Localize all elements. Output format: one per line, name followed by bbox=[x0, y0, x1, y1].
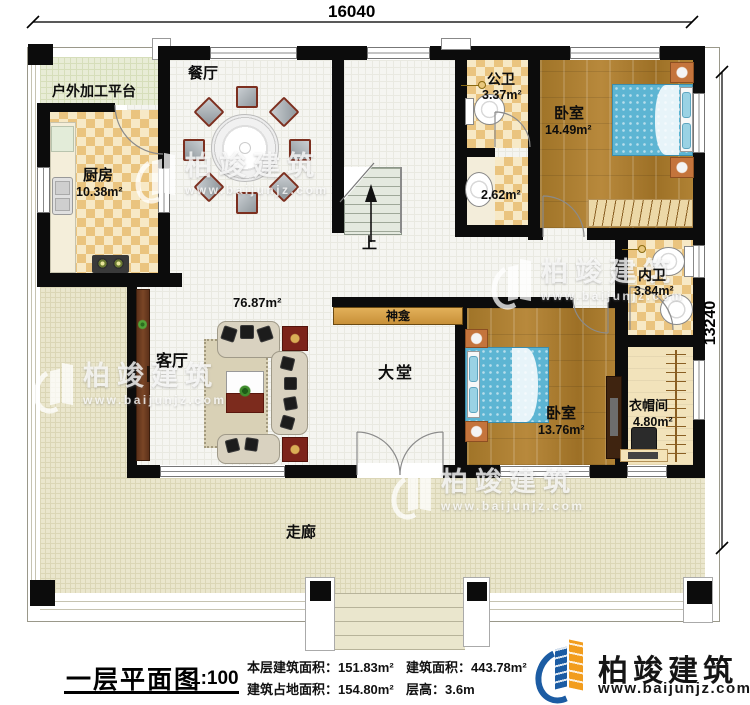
shelf-item bbox=[628, 452, 658, 459]
column bbox=[467, 582, 487, 601]
stat-value: 443.78m² bbox=[471, 660, 527, 675]
room-label-hall: 大堂 bbox=[378, 366, 414, 382]
terrace-edge-line bbox=[31, 57, 32, 593]
stat-value: 154.80m² bbox=[338, 682, 394, 697]
wall bbox=[693, 420, 705, 465]
wall bbox=[463, 148, 495, 157]
bed-fold bbox=[655, 85, 679, 155]
sofa-cushion bbox=[244, 437, 259, 452]
room-area-cloakroom: 4.80m² bbox=[633, 416, 673, 429]
sofa-cushion bbox=[284, 377, 297, 390]
window bbox=[627, 466, 667, 477]
wall bbox=[608, 297, 628, 308]
window bbox=[367, 47, 430, 59]
stat-value: 151.83m² bbox=[338, 660, 394, 675]
room-area-kitchen: 10.38m² bbox=[76, 186, 123, 199]
column bbox=[30, 580, 55, 606]
stat-floor-area: 本层建筑面积：151.83m² bbox=[247, 657, 394, 676]
wall bbox=[332, 297, 467, 307]
wall bbox=[332, 46, 344, 233]
wall bbox=[37, 103, 115, 112]
dim-tick bbox=[686, 16, 698, 28]
stove-burner bbox=[97, 258, 108, 269]
entry-threshold bbox=[357, 463, 443, 478]
stat-floor-height: 层高：3.6m bbox=[406, 679, 475, 698]
room-label-bedroom2: 卧室 bbox=[546, 406, 576, 421]
wall bbox=[615, 335, 705, 347]
room-label-outdoor-platform: 户外加工平台 bbox=[52, 84, 136, 98]
dining-chair bbox=[236, 86, 258, 108]
wall bbox=[127, 465, 160, 478]
shower-pipe bbox=[622, 249, 639, 250]
room-label-cloakroom: 衣帽间 bbox=[629, 399, 668, 412]
room-label-kitchen: 厨房 bbox=[83, 168, 113, 183]
stat-footprint-area: 建筑占地面积：154.80m² bbox=[247, 679, 394, 698]
wall bbox=[528, 60, 540, 240]
side-table bbox=[282, 326, 308, 351]
wall bbox=[285, 465, 357, 478]
stat-label: 建筑占地面积： bbox=[247, 682, 338, 697]
entrance-steps bbox=[333, 593, 465, 650]
stair-rail-line bbox=[400, 167, 402, 233]
window bbox=[160, 466, 285, 477]
room-label-living: 客厅 bbox=[156, 354, 188, 370]
room-label-dining: 餐厅 bbox=[188, 66, 218, 81]
room-area-living: 76.87m² bbox=[233, 296, 281, 309]
wall bbox=[660, 46, 705, 60]
kitchen-sink-bowl bbox=[55, 181, 70, 195]
nightstand bbox=[465, 421, 488, 442]
stairs-up-label: 上 bbox=[362, 236, 377, 251]
wall bbox=[455, 225, 533, 237]
window bbox=[693, 245, 705, 278]
nightstand bbox=[465, 329, 488, 348]
wall bbox=[615, 230, 628, 347]
nightstand bbox=[670, 157, 694, 178]
room-label-corridor: 走廊 bbox=[286, 525, 316, 540]
room-area-public-bath: 3.37m² bbox=[482, 89, 522, 102]
building-logo-icon bbox=[536, 638, 590, 698]
toilet-tank bbox=[684, 246, 694, 277]
column bbox=[310, 581, 331, 601]
vent-window bbox=[441, 38, 471, 50]
wall bbox=[693, 153, 705, 245]
stat-label: 建筑面积： bbox=[406, 660, 471, 675]
room-area-bedroom2: 13.76m² bbox=[538, 424, 585, 437]
wash-basin bbox=[660, 294, 693, 325]
shower-head bbox=[638, 245, 646, 253]
wall bbox=[37, 103, 50, 167]
shower-pipe bbox=[461, 85, 479, 86]
room-label-shrine: 神龛 bbox=[333, 310, 463, 322]
sofa-cushion bbox=[283, 396, 298, 411]
dimension-right: 13240 bbox=[702, 293, 720, 353]
room-area-bedroom1: 14.49m² bbox=[545, 124, 592, 137]
toilet-tank bbox=[465, 98, 474, 125]
room-label-inner-bath: 内卫 bbox=[638, 268, 666, 282]
stove-burner bbox=[113, 258, 124, 269]
door-handle bbox=[147, 366, 150, 382]
window bbox=[158, 168, 170, 213]
dimension-top: 16040 bbox=[328, 2, 375, 22]
stat-total-area: 建筑面积：443.78m² bbox=[406, 657, 527, 676]
refrigerator bbox=[51, 126, 74, 152]
window bbox=[500, 466, 590, 477]
pillow bbox=[469, 387, 478, 413]
terrace-edge-line bbox=[35, 57, 36, 593]
nightstand bbox=[670, 62, 694, 83]
dining-table-center bbox=[239, 142, 251, 154]
bed-fold bbox=[512, 348, 538, 422]
wall bbox=[693, 60, 705, 93]
wall bbox=[528, 228, 543, 240]
dining-chair bbox=[289, 139, 311, 161]
wall bbox=[590, 465, 627, 478]
plant bbox=[238, 384, 252, 398]
wall bbox=[667, 465, 705, 478]
floor-plan: 柏竣建筑 www.baijunjz.com 柏竣建筑 www.baijunjz.… bbox=[0, 0, 750, 705]
stat-label: 本层建筑面积： bbox=[247, 660, 338, 675]
room-label-public-bath: 公卫 bbox=[487, 72, 515, 86]
column bbox=[28, 44, 53, 65]
plan-scale: 1:100 bbox=[190, 668, 239, 690]
window bbox=[693, 360, 705, 420]
pillow bbox=[469, 356, 478, 382]
sofa-cushion bbox=[240, 325, 254, 339]
plant-small bbox=[138, 318, 147, 331]
room-area-wash: 2.62m² bbox=[481, 189, 521, 202]
dim-tick bbox=[27, 16, 39, 28]
stat-label: 层高： bbox=[406, 682, 445, 697]
wall bbox=[587, 228, 705, 240]
window bbox=[210, 47, 297, 59]
wall bbox=[443, 465, 500, 478]
wardrobe bbox=[588, 199, 693, 227]
window bbox=[37, 167, 50, 213]
window bbox=[570, 47, 660, 59]
stat-value: 3.6m bbox=[445, 682, 475, 697]
pillow bbox=[682, 123, 691, 149]
wall bbox=[467, 297, 573, 308]
column bbox=[687, 581, 712, 604]
pillow bbox=[682, 92, 691, 118]
window bbox=[693, 93, 705, 153]
wall bbox=[158, 46, 170, 168]
kitchen-sink-bowl bbox=[55, 198, 70, 211]
wall bbox=[37, 273, 182, 287]
title-underline bbox=[64, 691, 239, 694]
room-label-bedroom1: 卧室 bbox=[554, 106, 584, 121]
room-area-inner-bath: 3.84m² bbox=[634, 285, 674, 298]
cloakroom-rail bbox=[675, 350, 677, 462]
dining-chair bbox=[183, 139, 205, 161]
corridor-floor-bottom bbox=[40, 478, 705, 593]
tv-screen bbox=[610, 398, 618, 436]
side-table bbox=[282, 437, 308, 462]
staircase bbox=[344, 167, 402, 235]
dining-chair bbox=[236, 192, 258, 214]
logo-url: www.baijunjz.com bbox=[598, 680, 750, 697]
